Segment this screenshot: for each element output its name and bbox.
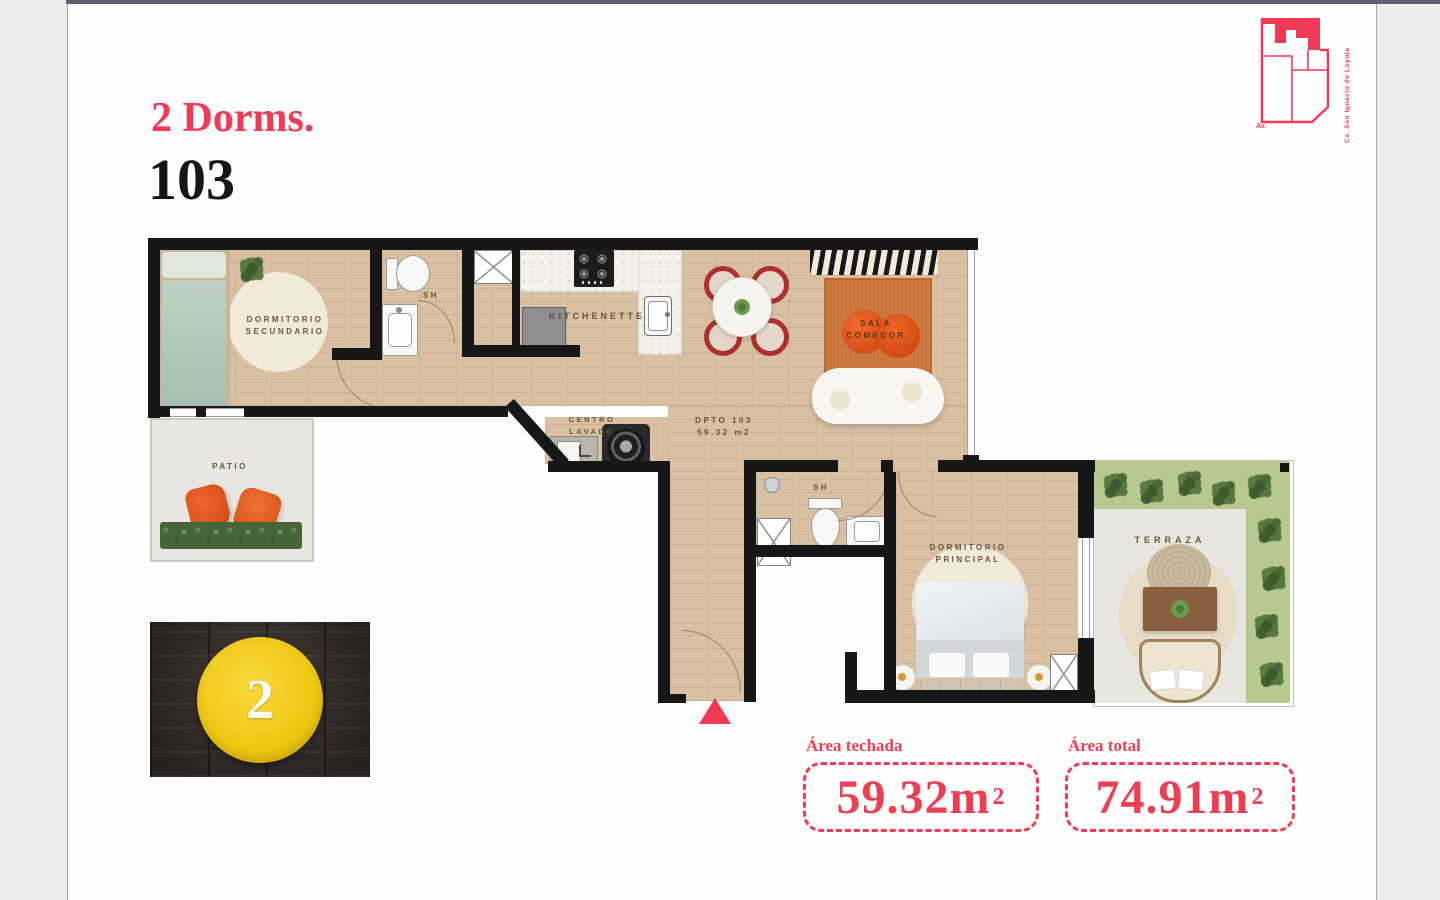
- secondary-bedroom-label: DORMITORIO SECUNDARIO: [225, 314, 345, 339]
- bath2-label: SH: [806, 482, 836, 494]
- wall: [884, 472, 896, 693]
- wall: [148, 238, 160, 418]
- toilet-bowl: [396, 255, 430, 292]
- stove: [574, 250, 614, 287]
- plant: [1098, 468, 1132, 502]
- bathroom-sink: [846, 516, 888, 548]
- wall: [512, 250, 520, 350]
- dining-table: [712, 277, 772, 337]
- plant: [1252, 513, 1286, 547]
- logo-avenue-label: Av.: [1256, 123, 1266, 130]
- wall: [148, 238, 978, 250]
- entrance-marker: [699, 698, 731, 724]
- unit-label-line: DPTO 103: [695, 416, 753, 425]
- window: [170, 408, 196, 417]
- kitchenette-label: KITCHENETTE: [532, 310, 662, 324]
- shower-head: [764, 477, 780, 493]
- area-value-text: 74.91m: [1096, 770, 1250, 825]
- closet: [474, 250, 514, 284]
- nightstand: [1026, 664, 1053, 691]
- wall: [744, 460, 838, 472]
- logo-street-label: Ca. San Ignacio de Loyola: [1344, 18, 1351, 143]
- area-total-label: Área total: [1068, 736, 1141, 756]
- area-value-sup: 2: [992, 784, 1005, 811]
- site-plan-logo: [1250, 12, 1346, 136]
- closet: [1050, 654, 1078, 694]
- area-techada-value: 59.32m2: [803, 762, 1039, 832]
- terraza: TERRAZA: [1093, 460, 1294, 707]
- plate-number: 2: [246, 668, 274, 732]
- sala-comedor-label: SALA COMEDOR: [836, 318, 916, 343]
- wall: [744, 472, 756, 702]
- wall-corner: [1280, 463, 1289, 472]
- plant: [1172, 466, 1206, 500]
- wall: [1078, 638, 1094, 703]
- room-label-line: LAVADO: [569, 427, 615, 436]
- wall: [658, 694, 686, 703]
- room-label-line: COMEDOR: [846, 331, 905, 340]
- unit-number-photo: 2: [150, 622, 370, 777]
- wall: [938, 460, 1095, 472]
- closet: [757, 518, 791, 566]
- yellow-plate: 2: [197, 637, 323, 763]
- room-label-line: CENTRO: [569, 415, 616, 424]
- wall: [462, 345, 580, 357]
- patio-label: PATIO: [180, 461, 280, 473]
- wall: [658, 472, 670, 700]
- terraza-label: TERRAZA: [1104, 534, 1236, 548]
- unit-area-label: DPTO 103 59.32 m2: [684, 415, 764, 440]
- window: [206, 408, 244, 417]
- area-value-text: 59.32m: [837, 770, 991, 825]
- bath1-label: SH: [416, 290, 446, 302]
- room-label-line: PRINCIPAL: [935, 555, 1000, 564]
- room-label-line: SECUNDARIO: [246, 327, 325, 336]
- bench-zebra: [810, 248, 938, 275]
- unit-label-line: 59.32 m2: [697, 428, 751, 437]
- wall: [756, 545, 894, 557]
- plant: [1256, 561, 1290, 595]
- wall: [462, 248, 474, 352]
- room-label-line: DORMITORIO: [247, 315, 324, 324]
- plant: [1134, 474, 1168, 508]
- window-glass: [1082, 538, 1090, 638]
- terraza-table: [1143, 587, 1217, 631]
- bathroom-sink: [382, 304, 418, 356]
- wall: [332, 348, 382, 360]
- plant: [1254, 657, 1288, 691]
- master-bedroom-label: DORMITORIO PRINCIPAL: [908, 542, 1028, 567]
- room-label-line: DORMITORIO: [930, 543, 1007, 552]
- patio-hedge: [160, 522, 302, 549]
- unit-number-title: 103: [148, 146, 235, 213]
- wall: [845, 690, 1095, 703]
- area-techada-label: Área techada: [806, 736, 902, 756]
- wall: [370, 248, 382, 354]
- plant: [1206, 476, 1240, 510]
- room-label-line: SALA: [860, 319, 892, 328]
- area-value-sup: 2: [1251, 784, 1264, 811]
- bed-secondary: [158, 248, 230, 412]
- sofa: [812, 368, 944, 424]
- plant: [1249, 609, 1283, 643]
- area-total-value: 74.91m2: [1065, 762, 1295, 832]
- page: 2 Dorms. 103 Ca. San Ignacio de Loyola A…: [0, 0, 1440, 900]
- wall: [548, 461, 670, 472]
- wall: [1078, 460, 1094, 538]
- plant: [234, 252, 268, 286]
- wall: [881, 460, 893, 472]
- laundry-label: CENTRO LAVADO: [552, 414, 632, 437]
- unit-type-title: 2 Dorms.: [151, 94, 314, 142]
- wall: [148, 406, 508, 417]
- wall: [963, 455, 979, 467]
- bed-master: [916, 582, 1024, 694]
- window-glass: [967, 250, 975, 462]
- plant: [1242, 469, 1276, 503]
